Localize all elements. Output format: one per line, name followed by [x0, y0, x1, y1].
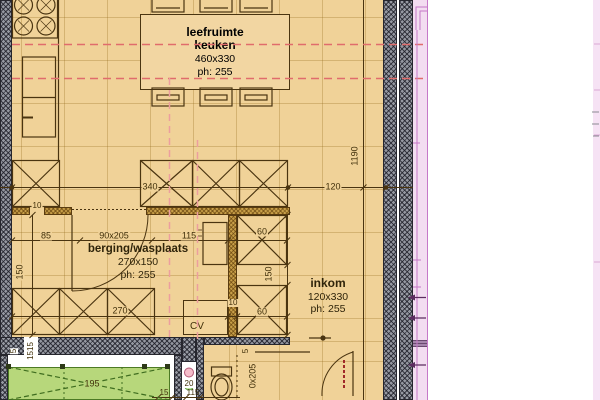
- wall-storage-right: [228, 215, 237, 337]
- kitchen-ph-label: ph: 255: [197, 66, 232, 79]
- wall-right-outer: [383, 0, 397, 400]
- dim-5-left: 5: [10, 348, 18, 354]
- dim-10-wall: 10: [32, 202, 43, 210]
- wall-storage-top-b: [44, 207, 72, 215]
- entrance-size: 120x330: [297, 291, 359, 304]
- dim-60-bottom: 60: [256, 308, 268, 317]
- dim-1190: 1190: [351, 145, 360, 166]
- pipe-rainwater: [185, 368, 194, 377]
- wall-gap-top: [182, 337, 196, 362]
- wall-wc-top: [204, 337, 290, 345]
- party-wall-hatch-strip: [413, 340, 428, 347]
- wall-storage-top-c: [146, 207, 290, 215]
- wall-left-lower: [0, 355, 8, 400]
- dim-60-top: 60: [256, 228, 268, 237]
- dim-85: 85: [40, 232, 52, 241]
- dim-270: 270: [111, 307, 128, 316]
- floor-wc-entrance: [204, 337, 383, 400]
- storage-ph: ph: 255: [52, 269, 224, 282]
- dim-20: 20: [184, 380, 195, 388]
- wall-left: [0, 0, 12, 355]
- dim-150-right: 150: [265, 265, 274, 282]
- entrance-ph: ph: 255: [297, 303, 359, 316]
- door-annotation-text: [343, 360, 345, 390]
- right-edge-strip: [593, 0, 600, 400]
- dim-340: 340: [141, 183, 158, 192]
- dim-115b: 115: [186, 389, 201, 397]
- kitchen-label-line1: leefruimte: [186, 26, 243, 40]
- dim-150-left: 150: [16, 263, 25, 280]
- dim-115: 115: [181, 232, 197, 241]
- dim-1515: 1515: [27, 341, 35, 361]
- storage-name: berging/wasplaats: [52, 243, 224, 256]
- cv-unit: CV: [183, 300, 228, 335]
- wall-right-inner: [399, 0, 413, 400]
- kitchen-label-line2: keuken: [194, 39, 235, 53]
- dim-120: 120: [324, 183, 341, 192]
- wall-storage-top-a: [12, 207, 30, 215]
- wall-pipe-left: [174, 355, 182, 400]
- dim-195: 195: [83, 380, 100, 389]
- dim-door-90x205: 90x205: [98, 232, 130, 241]
- entrance-room-label: inkom 120x330 ph: 255: [297, 277, 359, 316]
- entrance-name: inkom: [297, 277, 359, 291]
- dim-10-cabinet: 10: [228, 299, 239, 307]
- kitchen-size-label: 460x330: [195, 53, 235, 66]
- dim-5-right: 5: [242, 348, 250, 354]
- dim-15: 15: [159, 389, 170, 397]
- cv-label: CV: [190, 322, 204, 332]
- storage-size: 270x150: [52, 256, 224, 269]
- dim-door-0x205: 0x205: [249, 363, 258, 390]
- dining-table: leefruimte keuken 460x330 ph: 255: [140, 14, 290, 90]
- storage-room-label: berging/wasplaats 270x150 ph: 255: [52, 243, 224, 281]
- floor-plan-canvas: leefruimte keuken 460x330 ph: 255 CV: [0, 0, 600, 400]
